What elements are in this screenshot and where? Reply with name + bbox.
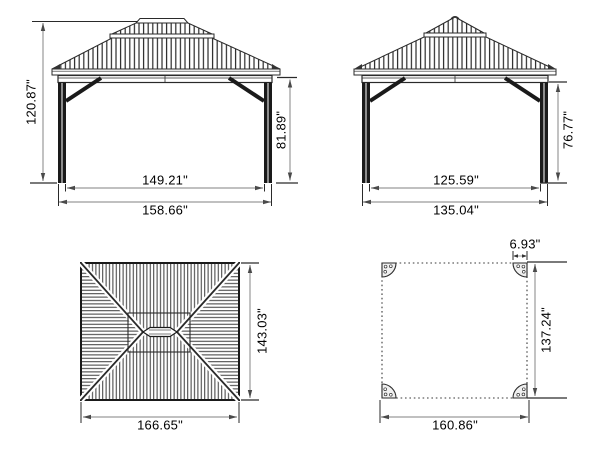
side-outer-width-label: 135.04" <box>433 203 479 218</box>
gazebo-dimension-drawing: 120.87" 81.89" 149.21" 158.66" 76.77" 12… <box>0 0 600 450</box>
roof-cap <box>136 19 188 24</box>
front-beam <box>58 76 272 83</box>
upper-tier-roof <box>426 17 484 33</box>
base-plan-view <box>300 225 600 450</box>
front-total-height-label: 120.87" <box>24 79 39 125</box>
roof-width-label: 166.65" <box>137 418 183 433</box>
roof-depth-label: 143.03" <box>255 308 270 354</box>
front-post-height-label: 81.89" <box>274 111 289 149</box>
side-post-height-label: 76.77" <box>561 111 576 149</box>
base-depth-label: 137.24" <box>539 307 554 353</box>
front-posts <box>58 78 272 183</box>
side-roof <box>354 17 556 76</box>
ridge-cap <box>143 328 177 337</box>
base-plate-top-left <box>382 263 396 277</box>
base-plate-bottom-right <box>513 384 527 398</box>
front-elevation-view <box>0 0 300 225</box>
side-inner-width-label: 125.59" <box>433 173 479 188</box>
side-elevation-drawing <box>300 0 600 225</box>
base-plate-top-right <box>513 263 527 277</box>
roof-panels <box>81 263 239 400</box>
base-plan-drawing <box>300 225 600 450</box>
main-fascia <box>52 69 280 75</box>
upper-tier-fascia <box>424 33 486 37</box>
front-outer-width-label: 158.66" <box>142 203 188 218</box>
main-roof <box>52 38 280 69</box>
plate-size-dimension <box>513 251 527 260</box>
base-plate-bottom-left <box>382 384 396 398</box>
side-beam <box>362 76 548 83</box>
base-width-label: 160.86" <box>432 418 478 433</box>
footprint-outline <box>382 263 527 398</box>
main-fascia <box>354 69 556 75</box>
side-posts <box>362 78 548 183</box>
corner-base-plates <box>382 263 527 398</box>
main-roof <box>356 37 554 69</box>
front-elevation-drawing <box>0 0 300 225</box>
upper-tier-roof <box>112 23 212 34</box>
front-roof <box>52 19 280 76</box>
upper-tier-fascia <box>110 34 214 38</box>
side-elevation-view <box>300 0 600 225</box>
base-plate-size-label: 6.93" <box>510 237 541 252</box>
front-inner-width-label: 149.21" <box>142 173 188 188</box>
